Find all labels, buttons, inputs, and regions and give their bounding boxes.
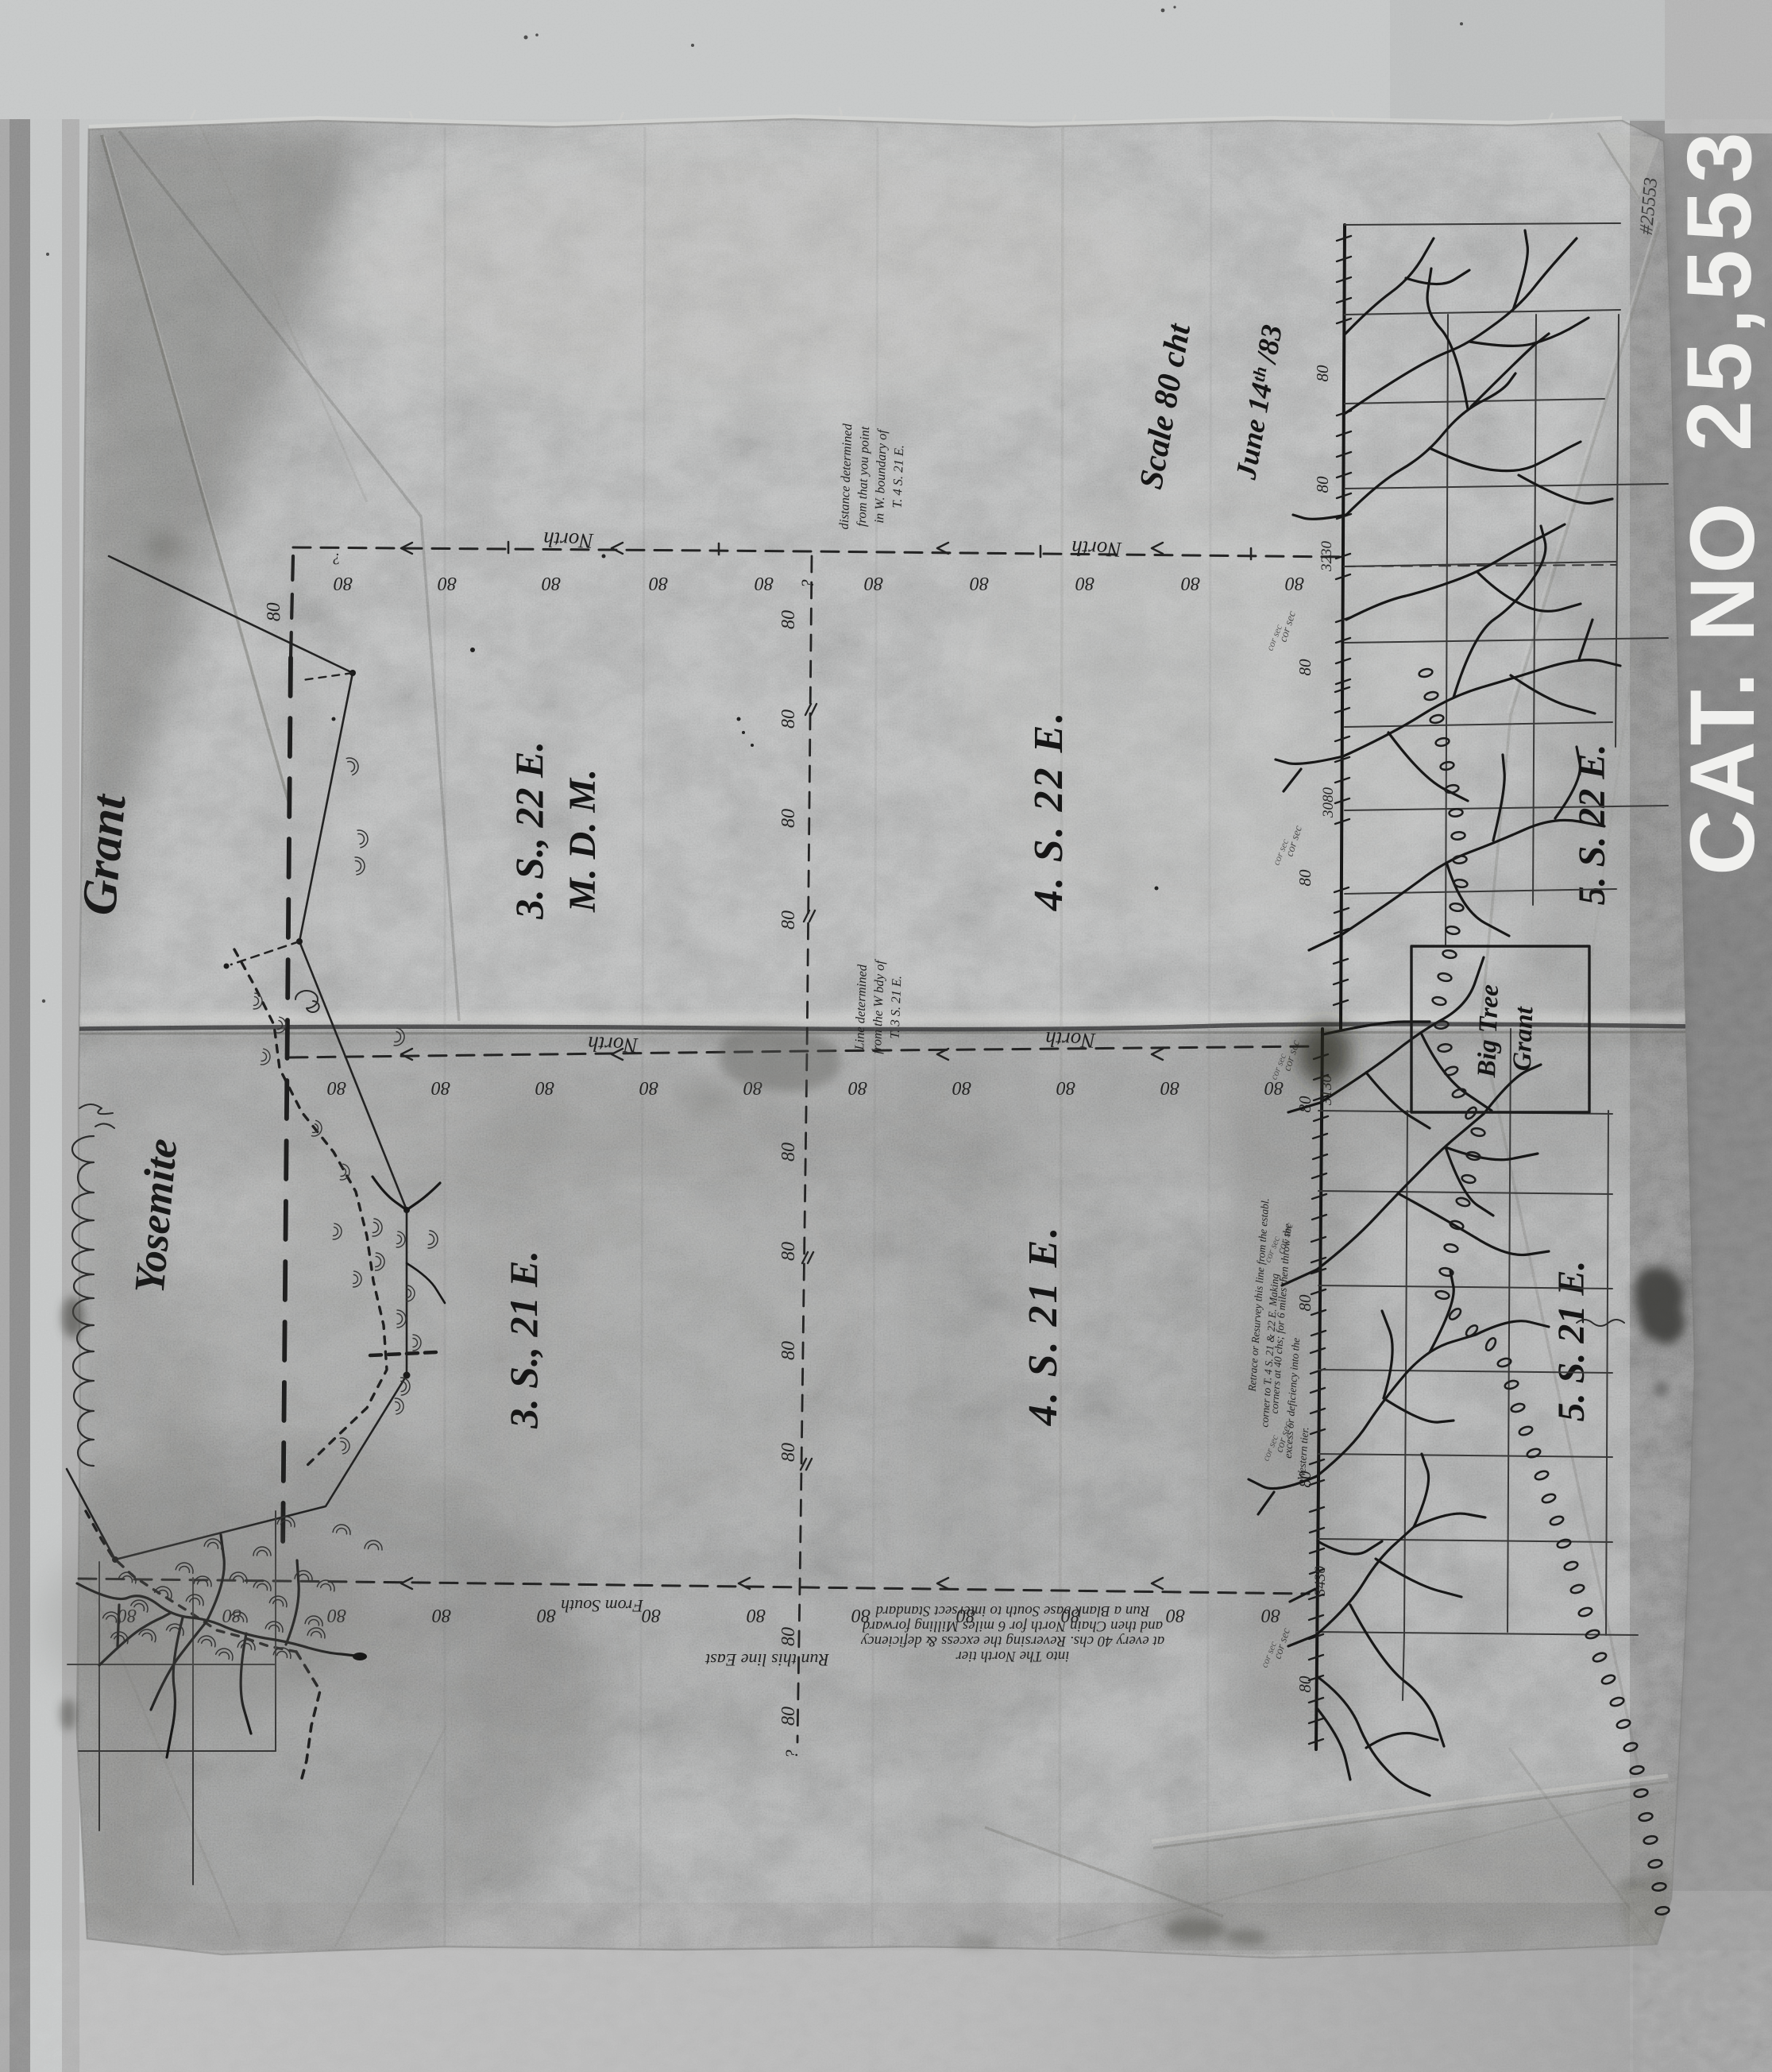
svg-text:80: 80	[1295, 869, 1315, 887]
svg-text:?: ?	[333, 550, 342, 567]
svg-text:Line determined: Line determined	[851, 964, 870, 1051]
svg-text:T. 4 S. 21 E.: T. 4 S. 21 E.	[890, 445, 907, 509]
svg-text:80: 80	[778, 1242, 799, 1261]
svg-text:CAT. NO: CAT. NO	[1672, 501, 1772, 876]
svg-text:North: North	[588, 1032, 639, 1057]
svg-text:80: 80	[1166, 1605, 1185, 1626]
svg-text:80: 80	[1313, 365, 1332, 382]
svg-text:80: 80	[747, 1605, 766, 1626]
svg-text:80: 80	[1313, 476, 1332, 493]
svg-text:80: 80	[264, 602, 285, 622]
svg-text:M. D. M.: M. D. M.	[562, 769, 604, 913]
svg-text:80: 80	[778, 1142, 799, 1162]
svg-text:80: 80	[755, 573, 774, 593]
svg-text:into The North tier: into The North tier	[955, 1648, 1070, 1664]
svg-text:80: 80	[1181, 573, 1200, 593]
svg-text:4. S. 22 E.: 4. S. 22 E.	[1026, 710, 1071, 912]
svg-text:80: 80	[537, 1605, 556, 1626]
svg-text:80: 80	[1261, 1605, 1280, 1626]
svg-text:80: 80	[327, 1077, 346, 1098]
svg-text:North: North	[543, 528, 595, 553]
svg-text:80: 80	[778, 1443, 799, 1462]
svg-text:T. 3 S. 21 E.: T. 3 S. 21 E.	[887, 976, 905, 1040]
svg-text:3080: 3080	[1320, 787, 1337, 819]
svg-text:80: 80	[778, 1627, 799, 1646]
svg-text:80: 80	[649, 573, 668, 593]
svg-text:80: 80	[952, 1077, 971, 1098]
svg-text:80: 80	[1160, 1077, 1179, 1098]
svg-text:Run this line East: Run this line East	[705, 1650, 830, 1670]
svg-text:80: 80	[639, 1077, 658, 1098]
svg-text:80: 80	[642, 1605, 661, 1626]
svg-text:80: 80	[778, 610, 799, 629]
svg-text:4. S. 21 E.: 4. S. 21 E.	[1021, 1225, 1066, 1427]
svg-text:80: 80	[1295, 659, 1315, 676]
svg-text:80: 80	[778, 709, 799, 729]
svg-text:80: 80	[1056, 1077, 1075, 1098]
svg-text:80: 80	[778, 1707, 799, 1726]
svg-text:From South: From South	[561, 1596, 644, 1616]
svg-text:80: 80	[1295, 1294, 1315, 1312]
svg-text:Run a Blank base South to inte: Run a Blank base South to intersect Stan…	[875, 1602, 1150, 1619]
svg-text:80: 80	[864, 573, 883, 593]
svg-text:80: 80	[432, 1605, 451, 1626]
svg-text:25,553: 25,553	[1669, 124, 1770, 451]
svg-text:80: 80	[542, 573, 561, 593]
svg-text:3. S., 21 E.: 3. S., 21 E.	[501, 1251, 546, 1429]
svg-text:80: 80	[431, 1077, 450, 1098]
svg-text:80: 80	[535, 1077, 554, 1098]
svg-text:?: ?	[797, 580, 817, 589]
svg-text:80: 80	[970, 573, 989, 593]
svg-text:80: 80	[778, 809, 799, 828]
svg-text:80: 80	[438, 573, 457, 593]
svg-text:3. S., 22 E.: 3. S., 22 E.	[507, 741, 551, 920]
svg-text:Big Tree: Big Tree	[1473, 984, 1504, 1079]
svg-text:80: 80	[778, 910, 799, 930]
svg-text:North: North	[1071, 536, 1123, 562]
svg-text:North: North	[1045, 1027, 1097, 1053]
svg-text:Grant: Grant	[1508, 1006, 1539, 1072]
svg-text:5. S. 21 E.: 5. S. 21 E.	[1550, 1261, 1592, 1422]
svg-text:80: 80	[1075, 573, 1094, 593]
svg-text:Grant: Grant	[72, 791, 137, 918]
svg-text:and then Chain North for 6 mil: and then Chain North for 6 miles Milling…	[862, 1618, 1163, 1634]
svg-text:80: 80	[334, 573, 353, 593]
svg-text:3430: 3430	[1312, 1566, 1329, 1598]
svg-text:3230: 3230	[1318, 541, 1335, 573]
svg-text:80: 80	[848, 1077, 867, 1098]
svg-text:80: 80	[1295, 1676, 1315, 1693]
svg-text:at every 40 chs. Reversing the: at every 40 chs. Reversing the excess & …	[860, 1633, 1164, 1649]
svg-text:?: ?	[782, 1750, 801, 1759]
svg-text:80: 80	[778, 1341, 799, 1360]
svg-text:80: 80	[1285, 573, 1304, 593]
